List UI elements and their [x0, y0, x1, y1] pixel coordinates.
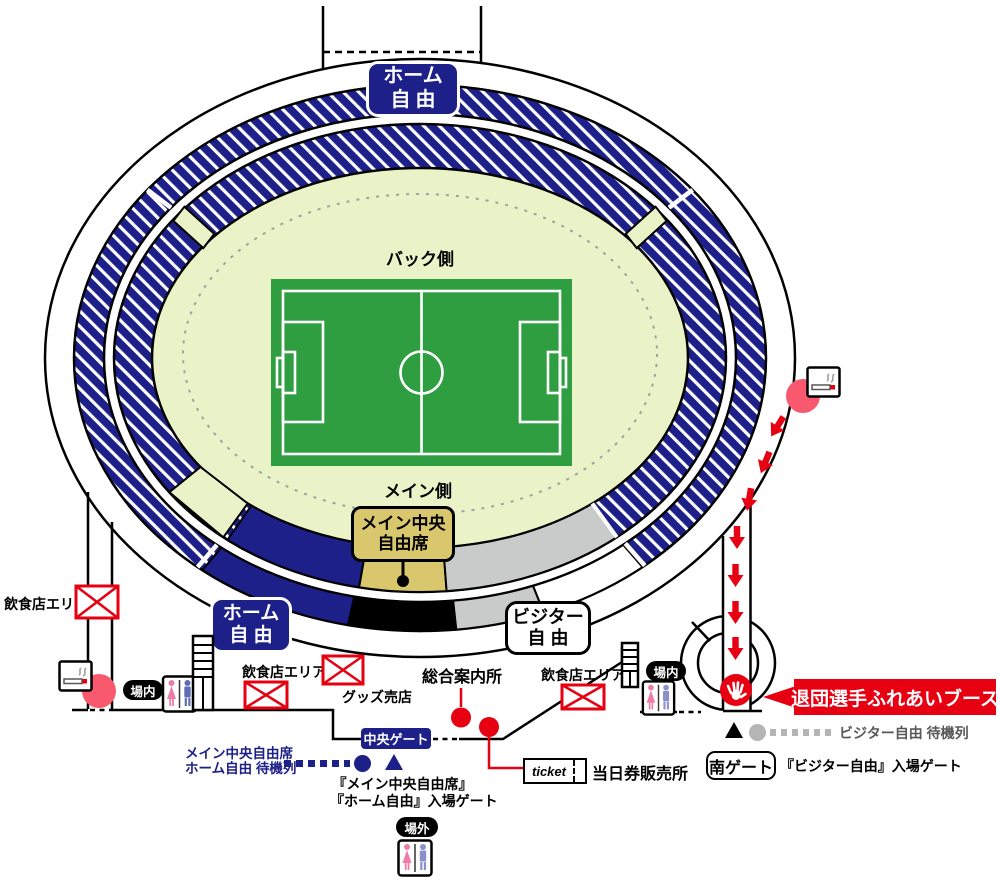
label-main-side: メイン側	[358, 477, 478, 502]
south-gate-note: 『ビジター自由』入場ゲート	[780, 756, 962, 776]
visitor-queue-start-dot	[749, 724, 766, 741]
stadium-map-canvas	[0, 0, 1000, 881]
badge-inside-west: 場内	[123, 680, 163, 700]
area-home-free-north: ホーム 自由	[366, 61, 460, 117]
ticket-office-sign: ticket	[523, 758, 587, 784]
label-back-side: バック側	[360, 245, 480, 270]
home-queue-start-dot	[354, 755, 371, 772]
south-gate-sign: 南ゲート	[706, 751, 776, 780]
home-queue-dotted-line	[284, 760, 350, 767]
home-queue-label-line2: ホーム自由 待機列	[185, 757, 296, 777]
food-stall-icon	[321, 654, 365, 686]
badge-outside: 場外	[396, 817, 438, 837]
visitor-gate-marker	[725, 722, 743, 738]
visitor-queue-dotted-line	[770, 729, 832, 736]
area-visitor-free: ビジター 自 由	[505, 601, 591, 655]
restroom-icon	[396, 839, 434, 877]
label-food-area-east: 飲食店エリア	[541, 665, 625, 685]
hand-greeting-icon	[720, 674, 752, 706]
info-point-markers	[451, 688, 523, 768]
food-stall-icon	[560, 683, 606, 711]
badge-inside-east: 場内	[646, 661, 686, 681]
main-gate-note: 『メイン中央自由席』 『ホーム自由』入場ゲート	[330, 776, 475, 809]
label-goods-shop: グッズ売店	[342, 687, 412, 707]
smoking-area-icon	[806, 366, 841, 398]
label-info-center: 総合案内所	[422, 663, 502, 687]
farewell-booth-callout: 退団選手ふれあいブース	[794, 679, 996, 715]
area-home-free-south: ホーム 自 由	[210, 597, 292, 653]
label-food-area-mid: 飲食店エリア	[242, 662, 326, 682]
home-gate-marker	[385, 754, 403, 770]
football-pitch	[271, 279, 572, 466]
label-ticket-office: 当日券販売所	[592, 760, 688, 784]
food-stall-icon	[74, 584, 120, 620]
restroom-icon	[640, 680, 677, 716]
stairs-icon	[620, 641, 640, 689]
visitor-queue-label: ビジター自由 待機列	[839, 723, 969, 743]
smoking-area-icon	[58, 660, 93, 692]
central-gate-sign: 中央ゲート	[361, 728, 431, 749]
ticket-logo: ticket	[525, 760, 573, 782]
stadium-guide-map: ホーム 自由 バック側 メイン側 メイン中央 自由席 ホーム 自 由 ビジター …	[0, 0, 1000, 881]
stairs-icon	[191, 634, 215, 712]
area-main-center-free: メイン中央 自由席	[351, 506, 455, 562]
food-stall-icon	[243, 680, 289, 710]
